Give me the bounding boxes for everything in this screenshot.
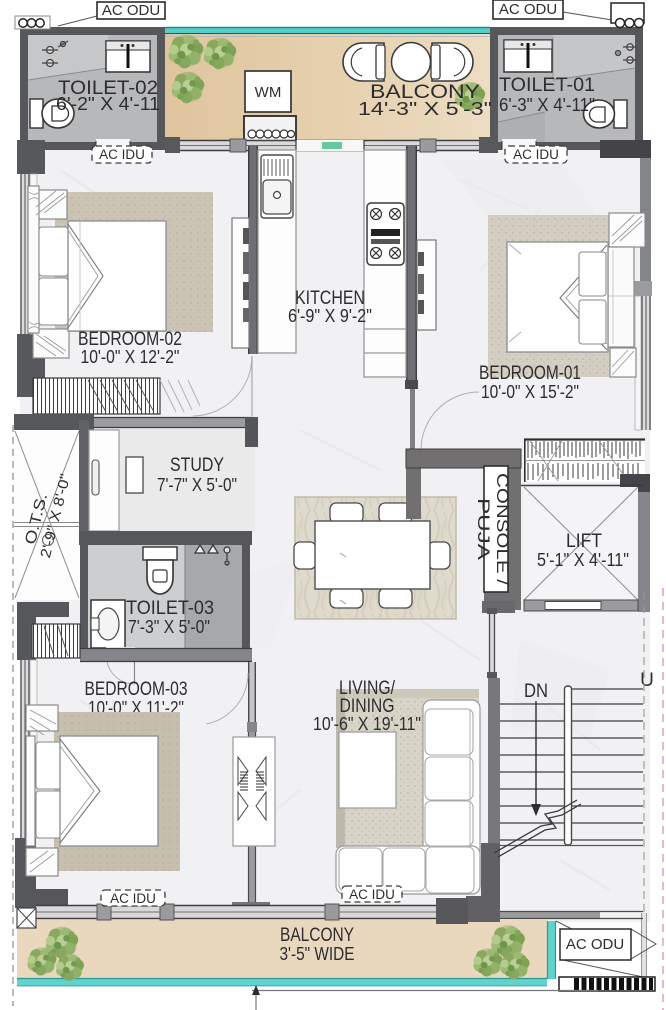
svg-text:AC IDU: AC IDU [513,147,559,162]
svg-text:10'-6" X 19'-11": 10'-6" X 19'-11" [313,714,421,734]
svg-text:AC IDU: AC IDU [99,147,145,162]
svg-text:DN: DN [524,681,548,702]
svg-text:PUJA: PUJA [474,498,493,561]
svg-text:10'-0" X 15'-2": 10'-0" X 15'-2" [481,382,579,402]
svg-text:WM: WM [255,84,282,101]
svg-text:AC IDU: AC IDU [349,887,395,902]
svg-text:AC ODU: AC ODU [102,2,160,19]
svg-text:AC ODU: AC ODU [499,1,557,18]
svg-text:CONSOLE /: CONSOLE / [493,473,512,585]
svg-text:TOILET-01: TOILET-01 [499,74,595,96]
svg-text:3'-5" WIDE: 3'-5" WIDE [280,944,355,964]
svg-text:6'-2" X 4'-11: 6'-2" X 4'-11 [56,94,160,114]
svg-text:AC IDU: AC IDU [110,891,156,906]
svg-text:BEDROOM-01: BEDROOM-01 [479,362,581,384]
svg-text:BEDROOM-03: BEDROOM-03 [85,678,188,700]
svg-text:U: U [640,670,654,691]
svg-text:STUDY: STUDY [170,454,224,476]
svg-text:6'-9" X 9'-2": 6'-9" X 9'-2" [288,306,372,326]
svg-text:5'-1" X 4'-11": 5'-1" X 4'-11" [537,550,629,570]
svg-text:7'-3" X 5'-0": 7'-3" X 5'-0" [128,617,210,637]
svg-text:14'-3" X 5'-3": 14'-3" X 5'-3" [358,98,492,119]
svg-text:AC ODU: AC ODU [566,936,624,953]
svg-text:7'-7" X 5'-0": 7'-7" X 5'-0" [157,475,237,495]
svg-text:BALCONY: BALCONY [280,925,354,946]
svg-text:10'-0" X 12'-2": 10'-0" X 12'-2" [81,347,180,367]
svg-text:LIFT: LIFT [566,530,602,552]
svg-text:TOILET-03: TOILET-03 [126,597,214,619]
svg-text:6'-3" X 4'-11": 6'-3" X 4'-11" [499,95,595,115]
